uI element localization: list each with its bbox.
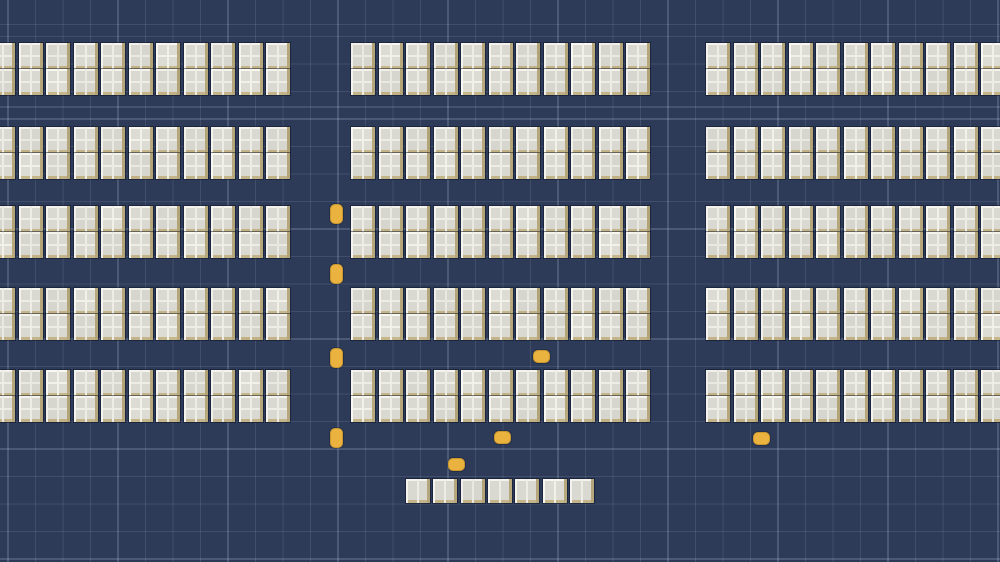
building-tile (543, 479, 567, 503)
building-tile (706, 43, 730, 69)
building-tile (789, 314, 813, 340)
building-tile (981, 153, 1000, 179)
building-tile (789, 232, 813, 258)
building-tile (954, 232, 978, 258)
building-tile (626, 314, 650, 340)
building-tile (74, 232, 98, 258)
building-tile (571, 396, 595, 422)
building-tile (239, 314, 263, 340)
building-tile (761, 69, 785, 95)
building-tile (816, 153, 840, 179)
building-tile (599, 127, 623, 153)
building-tile (211, 314, 235, 340)
building-tile (954, 127, 978, 153)
building-tile (844, 232, 868, 258)
building-tile (926, 370, 950, 396)
building-tile (184, 314, 208, 340)
building-tile (734, 153, 758, 179)
building-tile (706, 153, 730, 179)
building-tile (734, 370, 758, 396)
building-tile (434, 69, 458, 95)
building-tile (184, 69, 208, 95)
building-tile (74, 153, 98, 179)
building-tile (734, 314, 758, 340)
building-tile (184, 232, 208, 258)
building-tile (156, 314, 180, 340)
building-tile (19, 153, 43, 179)
building-tile (871, 288, 895, 314)
building-tile (599, 69, 623, 95)
building-tile (211, 396, 235, 422)
building-tile (379, 370, 403, 396)
building-tile (129, 232, 153, 258)
building-tile (626, 288, 650, 314)
building-tile (706, 69, 730, 95)
building-tile (406, 288, 430, 314)
building-tile (239, 370, 263, 396)
building-tile (461, 232, 485, 258)
building-tile (19, 370, 43, 396)
building-tile (101, 127, 125, 153)
building-tile (599, 232, 623, 258)
building-tile (899, 127, 923, 153)
building-tile (461, 69, 485, 95)
building-tile (544, 206, 568, 232)
building-tile (926, 69, 950, 95)
building-tile (351, 232, 375, 258)
building-tile (266, 43, 290, 69)
building-tile (156, 69, 180, 95)
building-tile (816, 370, 840, 396)
building-tile (351, 43, 375, 69)
building-tile (516, 288, 540, 314)
building-tile (734, 127, 758, 153)
building-tile (844, 288, 868, 314)
building-tile (761, 288, 785, 314)
building-tile (871, 153, 895, 179)
building-tile (926, 153, 950, 179)
building-tile (599, 43, 623, 69)
building-tile (761, 370, 785, 396)
vehicle-marker[interactable] (494, 431, 511, 444)
building-tile (871, 206, 895, 232)
building-tile (266, 314, 290, 340)
building-tile (184, 370, 208, 396)
building-tile (571, 69, 595, 95)
building-tile (129, 396, 153, 422)
building-tile (789, 43, 813, 69)
building-tile (489, 370, 513, 396)
building-tile (211, 127, 235, 153)
building-tile (761, 396, 785, 422)
building-tile (489, 153, 513, 179)
building-tile (516, 396, 540, 422)
building-tile (351, 288, 375, 314)
building-tile (899, 396, 923, 422)
building-tile (816, 206, 840, 232)
building-tile (211, 288, 235, 314)
building-tile (571, 43, 595, 69)
building-tile (544, 314, 568, 340)
building-tile (516, 232, 540, 258)
building-tile (844, 69, 868, 95)
building-tile (954, 314, 978, 340)
building-tile (844, 396, 868, 422)
building-tile (46, 232, 70, 258)
building-tile (954, 396, 978, 422)
building-tile (571, 370, 595, 396)
building-tile (74, 288, 98, 314)
building-tile (239, 153, 263, 179)
building-tile (626, 127, 650, 153)
building-tile (406, 153, 430, 179)
vehicle-marker[interactable] (330, 204, 343, 224)
building-tile (871, 43, 895, 69)
building-tile (816, 43, 840, 69)
game-board[interactable] (0, 0, 1000, 562)
building-tile (129, 206, 153, 232)
building-tile (544, 370, 568, 396)
building-tile (0, 69, 15, 95)
building-tile (239, 396, 263, 422)
building-tile (516, 314, 540, 340)
building-tile (706, 370, 730, 396)
vehicle-marker[interactable] (330, 428, 343, 448)
building-tile (816, 232, 840, 258)
building-tile (981, 127, 1000, 153)
building-tile (734, 69, 758, 95)
building-tile (379, 206, 403, 232)
building-tile (434, 43, 458, 69)
building-tile (761, 43, 785, 69)
building-tile (266, 153, 290, 179)
building-tile (516, 127, 540, 153)
building-tile (844, 43, 868, 69)
building-tile (461, 206, 485, 232)
building-tile (981, 69, 1000, 95)
building-tile (981, 43, 1000, 69)
building-tile (184, 396, 208, 422)
building-tile (0, 370, 15, 396)
building-tile (706, 314, 730, 340)
building-tile (844, 153, 868, 179)
building-tile (266, 127, 290, 153)
building-tile (816, 396, 840, 422)
building-tile (489, 43, 513, 69)
building-tile (19, 206, 43, 232)
building-tile (434, 153, 458, 179)
building-tile (544, 288, 568, 314)
building-tile (954, 153, 978, 179)
building-tile (129, 153, 153, 179)
building-tile (239, 127, 263, 153)
building-tile (461, 370, 485, 396)
building-tile (46, 127, 70, 153)
building-tile (626, 153, 650, 179)
building-tile (871, 127, 895, 153)
building-tile (706, 232, 730, 258)
building-tile (461, 127, 485, 153)
building-tile (0, 43, 15, 69)
building-tile (816, 288, 840, 314)
building-tile (239, 206, 263, 232)
building-tile (0, 396, 15, 422)
building-tile (0, 127, 15, 153)
building-tile (734, 43, 758, 69)
building-tile (516, 43, 540, 69)
building-tile (101, 206, 125, 232)
building-tile (899, 153, 923, 179)
building-tile (516, 370, 540, 396)
building-tile (734, 206, 758, 232)
building-tile (19, 43, 43, 69)
vehicle-marker[interactable] (753, 432, 770, 445)
building-tile (489, 206, 513, 232)
building-tile (871, 232, 895, 258)
building-tile (734, 288, 758, 314)
building-tile (899, 43, 923, 69)
building-tile (184, 153, 208, 179)
building-tile (706, 127, 730, 153)
building-tile (626, 232, 650, 258)
building-tile (239, 69, 263, 95)
building-tile (156, 127, 180, 153)
building-tile (379, 288, 403, 314)
building-tile (954, 370, 978, 396)
building-tile (434, 232, 458, 258)
building-tile (0, 232, 15, 258)
building-tile (211, 153, 235, 179)
building-tile (156, 370, 180, 396)
building-tile (899, 370, 923, 396)
building-tile (899, 288, 923, 314)
building-tile (599, 370, 623, 396)
building-tile (351, 153, 375, 179)
building-tile (789, 288, 813, 314)
building-tile (544, 153, 568, 179)
building-tile (761, 127, 785, 153)
building-tile (101, 43, 125, 69)
building-tile (626, 206, 650, 232)
building-tile (156, 153, 180, 179)
building-tile (981, 206, 1000, 232)
building-tile (46, 153, 70, 179)
building-tile (266, 370, 290, 396)
building-tile (761, 314, 785, 340)
building-tile (816, 314, 840, 340)
building-tile (489, 314, 513, 340)
building-tile (379, 69, 403, 95)
building-tile (816, 69, 840, 95)
building-tile (789, 69, 813, 95)
building-tile (239, 43, 263, 69)
building-tile (461, 314, 485, 340)
building-tile (706, 288, 730, 314)
vehicle-marker[interactable] (448, 458, 465, 471)
building-tile (211, 370, 235, 396)
building-tile (489, 396, 513, 422)
building-tile (599, 206, 623, 232)
building-tile (434, 370, 458, 396)
building-tile (156, 43, 180, 69)
building-tile (926, 206, 950, 232)
building-tile (434, 314, 458, 340)
building-tile (239, 232, 263, 258)
building-tile (434, 396, 458, 422)
building-tile (46, 370, 70, 396)
building-tile (871, 314, 895, 340)
building-tile (0, 288, 15, 314)
building-tile (46, 69, 70, 95)
building-tile (101, 288, 125, 314)
building-tile (489, 127, 513, 153)
building-tile (789, 153, 813, 179)
building-tile (351, 314, 375, 340)
building-tile (571, 127, 595, 153)
building-tile (211, 43, 235, 69)
building-tile (351, 69, 375, 95)
building-tile (461, 153, 485, 179)
building-tile (46, 288, 70, 314)
building-tile (351, 396, 375, 422)
building-tile (434, 206, 458, 232)
building-tile (981, 288, 1000, 314)
building-tile (954, 69, 978, 95)
building-tile (406, 479, 430, 503)
building-tile (434, 127, 458, 153)
building-tile (211, 232, 235, 258)
building-tile (379, 43, 403, 69)
building-tile (101, 153, 125, 179)
building-tile (129, 370, 153, 396)
building-tile (599, 288, 623, 314)
building-tile (844, 127, 868, 153)
building-tile (926, 232, 950, 258)
building-tile (129, 314, 153, 340)
building-tile (19, 232, 43, 258)
building-tile (899, 69, 923, 95)
building-tile (406, 232, 430, 258)
building-tile (379, 232, 403, 258)
vehicle-marker[interactable] (533, 350, 550, 363)
building-tile (461, 43, 485, 69)
building-tile (761, 206, 785, 232)
building-tile (406, 43, 430, 69)
building-tile (599, 396, 623, 422)
building-tile (101, 314, 125, 340)
building-tile (789, 396, 813, 422)
vehicle-marker[interactable] (330, 348, 343, 368)
building-tile (74, 370, 98, 396)
building-tile (129, 127, 153, 153)
building-tile (101, 396, 125, 422)
building-tile (571, 232, 595, 258)
building-tile (239, 288, 263, 314)
building-tile (19, 396, 43, 422)
building-tile (789, 370, 813, 396)
building-tile (926, 396, 950, 422)
building-tile (570, 479, 594, 503)
building-tile (515, 479, 539, 503)
building-tile (434, 288, 458, 314)
building-tile (626, 69, 650, 95)
building-tile (406, 314, 430, 340)
building-tile (899, 232, 923, 258)
building-tile (871, 370, 895, 396)
building-tile (954, 43, 978, 69)
building-tile (516, 153, 540, 179)
building-tile (926, 127, 950, 153)
building-tile (266, 396, 290, 422)
building-tile (19, 288, 43, 314)
building-tile (871, 69, 895, 95)
building-tile (844, 314, 868, 340)
building-tile (544, 69, 568, 95)
building-tile (156, 288, 180, 314)
building-tile (761, 153, 785, 179)
building-tile (211, 206, 235, 232)
building-tile (489, 69, 513, 95)
building-tile (844, 370, 868, 396)
building-tile (46, 206, 70, 232)
building-tile (516, 206, 540, 232)
building-tile (488, 479, 512, 503)
building-tile (46, 314, 70, 340)
building-tile (571, 314, 595, 340)
building-tile (184, 288, 208, 314)
building-tile (101, 370, 125, 396)
building-tile (981, 314, 1000, 340)
building-tile (926, 288, 950, 314)
building-tile (351, 370, 375, 396)
building-tile (461, 479, 485, 503)
building-tile (156, 206, 180, 232)
building-tile (74, 314, 98, 340)
building-tile (379, 396, 403, 422)
building-tile (156, 396, 180, 422)
building-tile (981, 396, 1000, 422)
building-tile (789, 127, 813, 153)
building-tile (871, 396, 895, 422)
building-tile (266, 206, 290, 232)
building-tile (0, 206, 15, 232)
building-tile (899, 314, 923, 340)
building-tile (544, 396, 568, 422)
building-tile (406, 206, 430, 232)
building-tile (46, 396, 70, 422)
building-tile (926, 314, 950, 340)
building-tile (544, 232, 568, 258)
building-tile (544, 127, 568, 153)
building-tile (981, 370, 1000, 396)
building-tile (406, 396, 430, 422)
building-tile (129, 288, 153, 314)
building-tile (74, 206, 98, 232)
building-tile (899, 206, 923, 232)
building-tile (516, 69, 540, 95)
building-tile (734, 232, 758, 258)
building-tile (184, 127, 208, 153)
building-tile (74, 69, 98, 95)
building-tile (406, 69, 430, 95)
building-tile (844, 206, 868, 232)
building-tile (184, 43, 208, 69)
building-tile (734, 396, 758, 422)
building-tile (379, 153, 403, 179)
building-tile (379, 314, 403, 340)
vehicle-marker[interactable] (330, 264, 343, 284)
building-tile (129, 43, 153, 69)
